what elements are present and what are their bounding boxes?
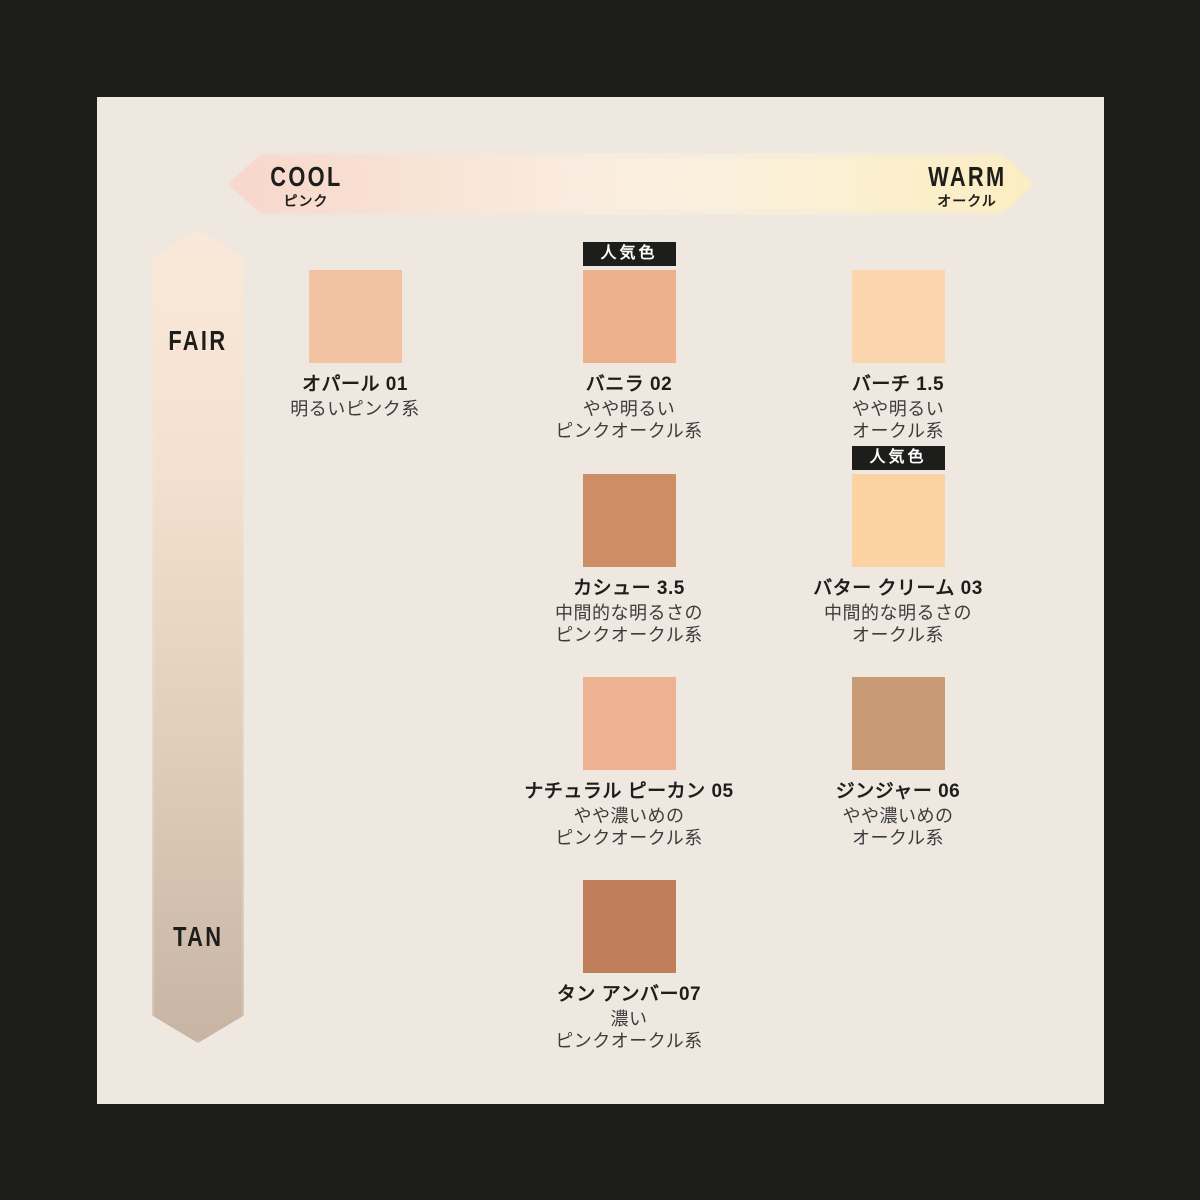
- shade-name: ジンジャー 06: [788, 781, 1008, 803]
- shade-desc-line: オークル系: [788, 827, 1008, 849]
- shade-cell-vanilla-02: 人気色 バニラ 02 やや明るい ピンクオークル系: [519, 270, 739, 442]
- shade-desc-line: オークル系: [788, 420, 1008, 442]
- shade-desc-line: やや明るい: [519, 398, 739, 420]
- shade-cell-ginger-06: ジンジャー 06 やや濃いめの オークル系: [788, 677, 1008, 849]
- shade-swatch: [852, 270, 945, 363]
- cool-sublabel-text: ピンク: [226, 194, 386, 209]
- shade-desc-line: 濃い: [519, 1008, 739, 1030]
- warm-label-text: WARM: [928, 163, 1007, 191]
- tan-label-text: TAN: [173, 923, 223, 951]
- shade-name: タン アンバー07: [519, 984, 739, 1006]
- shade-swatch: [852, 474, 945, 567]
- shade-description: やや濃いめの オークル系: [788, 805, 1008, 849]
- shade-cell-opal-01: オパール 01 明るいピンク系: [245, 270, 465, 420]
- shade-description: 中間的な明るさの オークル系: [788, 602, 1008, 646]
- product-shade-chart: { "frame_color": "#1D1D1B", "panel_color…: [0, 0, 1200, 1200]
- shade-desc-line: ピンクオークル系: [519, 624, 739, 646]
- shade-desc-line: 中間的な明るさの: [519, 602, 739, 624]
- shade-cell-butter-cream-03: 人気色 バター クリーム 03 中間的な明るさの オークル系: [788, 474, 1008, 646]
- shade-swatch: [583, 880, 676, 973]
- shade-desc-line: やや濃いめの: [519, 805, 739, 827]
- shade-name: バーチ 1.5: [788, 374, 1008, 396]
- shade-name: バニラ 02: [519, 374, 739, 396]
- shade-description: やや濃いめの ピンクオークル系: [519, 805, 739, 849]
- fair-label-text: FAIR: [168, 327, 227, 355]
- shade-desc-line: 明るいピンク系: [245, 398, 465, 420]
- tan-axis-label: TAN: [118, 923, 278, 951]
- shade-name: バター クリーム 03: [788, 578, 1008, 600]
- shade-description: 中間的な明るさの ピンクオークル系: [519, 602, 739, 646]
- shade-swatch: [583, 677, 676, 770]
- shade-cell-tan-amber-07: タン アンバー07 濃い ピンクオークル系: [519, 880, 739, 1052]
- shade-description: やや明るい ピンクオークル系: [519, 398, 739, 442]
- shade-desc-line: オークル系: [788, 624, 1008, 646]
- shade-chart-panel: COOL ピンク WARM オークル FAIR TAN オパール 01 明るいピ…: [97, 97, 1104, 1104]
- popular-color-badge: 人気色: [583, 242, 676, 266]
- shade-cell-natural-pecan-05: ナチュラル ピーカン 05 やや濃いめの ピンクオークル系: [519, 677, 739, 849]
- shade-desc-line: やや濃いめの: [788, 805, 1008, 827]
- shade-desc-line: やや明るい: [788, 398, 1008, 420]
- shade-desc-line: ピンクオークル系: [519, 1030, 739, 1052]
- shade-desc-line: ピンクオークル系: [519, 420, 739, 442]
- shade-description: 濃い ピンクオークル系: [519, 1008, 739, 1052]
- shade-desc-line: ピンクオークル系: [519, 827, 739, 849]
- shade-swatch: [583, 270, 676, 363]
- shade-name: オパール 01: [245, 374, 465, 396]
- shade-description: 明るいピンク系: [245, 398, 465, 420]
- warm-axis-label: WARM オークル: [887, 163, 1047, 209]
- popular-color-badge: 人気色: [852, 446, 945, 470]
- shade-name: ナチュラル ピーカン 05: [519, 781, 739, 803]
- shade-swatch: [583, 474, 676, 567]
- shade-desc-line: 中間的な明るさの: [788, 602, 1008, 624]
- cool-axis-label: COOL ピンク: [226, 163, 386, 209]
- shade-swatch: [309, 270, 402, 363]
- warm-sublabel-text: オークル: [887, 194, 1047, 209]
- shade-swatch: [852, 677, 945, 770]
- shade-cell-birch-1-5: バーチ 1.5 やや明るい オークル系: [788, 270, 1008, 442]
- cool-label-text: COOL: [270, 163, 342, 191]
- shade-name: カシュー 3.5: [519, 578, 739, 600]
- shade-description: やや明るい オークル系: [788, 398, 1008, 442]
- shade-cell-cashew-3-5: カシュー 3.5 中間的な明るさの ピンクオークル系: [519, 474, 739, 646]
